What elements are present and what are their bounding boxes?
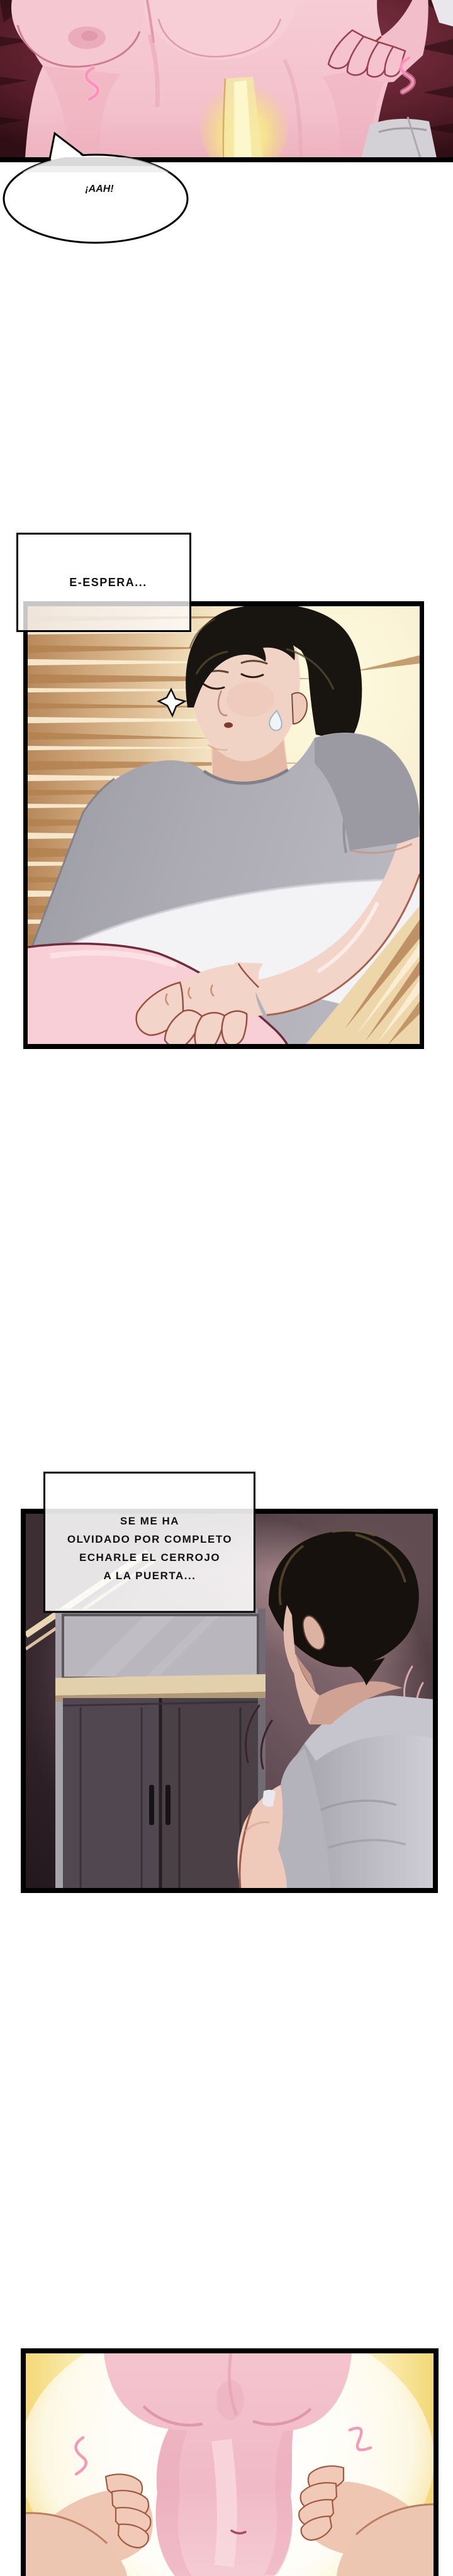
svg-text:¡AAH!: ¡AAH! <box>85 184 114 194</box>
svg-text:A LA PUERTA...: A LA PUERTA... <box>104 1570 196 1582</box>
svg-text:ECHARLE EL CERROJO: ECHARLE EL CERROJO <box>79 1552 220 1563</box>
svg-text:SE ME HA: SE ME HA <box>120 1515 179 1527</box>
svg-text:E-ESPERA...: E-ESPERA... <box>69 576 147 589</box>
svg-text:OLVIDADO POR COMPLETO: OLVIDADO POR COMPLETO <box>67 1533 232 1545</box>
